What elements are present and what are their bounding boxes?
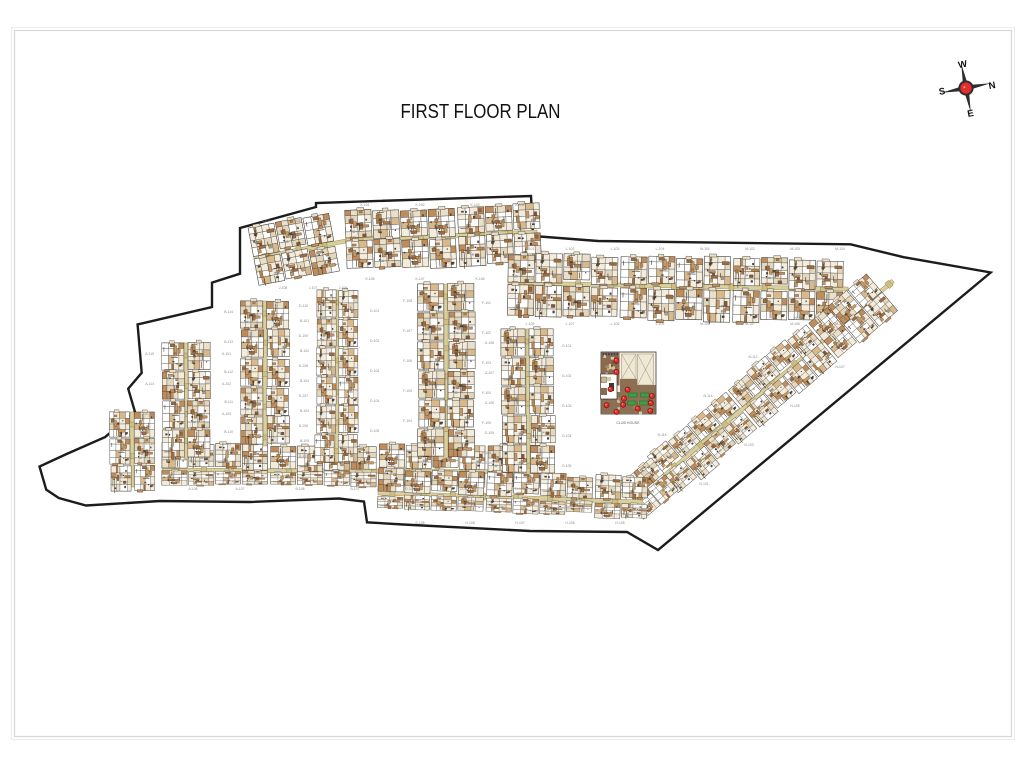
svg-text:D-107: D-107 (299, 394, 308, 398)
svg-text:L-102: L-102 (566, 247, 575, 251)
svg-text:F-105: F-105 (403, 389, 412, 393)
svg-text:D-104: D-104 (370, 399, 379, 403)
svg-text:F-106: F-106 (403, 359, 412, 363)
svg-text:M-107: M-107 (745, 322, 755, 326)
svg-text:K-107: K-107 (415, 277, 424, 281)
svg-text:K-105: K-105 (525, 277, 534, 281)
svg-text:D-109: D-109 (299, 334, 308, 338)
svg-text:F-107: F-107 (403, 329, 412, 333)
svg-text:G-103: G-103 (562, 404, 572, 408)
svg-text:B-101: B-101 (300, 319, 309, 323)
svg-text:G-101: G-101 (562, 344, 572, 348)
svg-text:N-116: N-116 (658, 433, 667, 437)
svg-text:G-104: G-104 (562, 434, 572, 438)
svg-text:N-112: N-112 (749, 355, 758, 359)
svg-text:FIRST FLOOR PLAN: FIRST FLOOR PLAN (401, 100, 561, 123)
svg-text:J-106: J-106 (339, 286, 348, 290)
svg-text:A-108: A-108 (188, 487, 197, 491)
svg-text:B-110: B-110 (224, 430, 233, 434)
svg-text:M-106: M-106 (790, 322, 800, 326)
svg-text:B-111: B-111 (224, 400, 233, 404)
svg-text:J-107: J-107 (309, 286, 318, 290)
svg-text:D-106: D-106 (299, 424, 308, 428)
svg-text:D-105: D-105 (370, 429, 379, 433)
svg-text:F-104: F-104 (482, 391, 491, 395)
svg-text:M-108: M-108 (700, 322, 710, 326)
svg-text:N-101: N-101 (699, 482, 708, 486)
svg-text:K-102: K-102 (415, 203, 424, 207)
svg-text:D-101: D-101 (370, 309, 379, 313)
svg-text:F-106: F-106 (482, 451, 491, 455)
svg-text:B-114: B-114 (224, 310, 233, 314)
svg-text:A-112: A-112 (145, 442, 154, 446)
svg-text:A-101: A-101 (222, 352, 231, 356)
svg-text:A-103: A-103 (222, 412, 231, 416)
svg-text:F-103: F-103 (482, 361, 491, 365)
svg-text:B-103: B-103 (300, 379, 309, 383)
svg-text:E-108: E-108 (415, 521, 424, 525)
svg-text:L-105: L-105 (656, 322, 665, 326)
svg-text:J-103: J-103 (322, 219, 331, 223)
svg-text:B-108: B-108 (295, 487, 304, 491)
svg-text:G-106: G-106 (485, 401, 495, 405)
svg-text:A-104: A-104 (222, 442, 231, 446)
svg-text:K-106: K-106 (475, 277, 484, 281)
svg-text:B-113: B-113 (224, 340, 233, 344)
svg-text:K-103: K-103 (470, 203, 479, 207)
svg-text:G-104: G-104 (485, 461, 495, 465)
svg-text:G-105: G-105 (485, 431, 495, 435)
svg-text:F-103: F-103 (403, 449, 412, 453)
svg-text:D-102: D-102 (370, 339, 379, 343)
svg-text:B-107: B-107 (350, 487, 359, 491)
svg-text:A-107: A-107 (235, 487, 244, 491)
svg-text:K-101: K-101 (360, 203, 369, 207)
svg-text:M-105: M-105 (835, 322, 845, 326)
svg-text:D-103: D-103 (370, 369, 379, 373)
svg-text:H-105: H-105 (615, 521, 624, 525)
svg-text:D-107: D-107 (460, 487, 469, 491)
svg-text:D-105: D-105 (299, 454, 308, 458)
svg-text:F-108: F-108 (403, 299, 412, 303)
svg-text:N-114: N-114 (704, 394, 713, 398)
svg-text:B-105: B-105 (300, 439, 309, 443)
svg-text:N-110: N-110 (795, 316, 804, 320)
svg-text:B-112: B-112 (224, 370, 233, 374)
svg-text:D-110: D-110 (299, 304, 308, 308)
svg-text:L-103: L-103 (611, 247, 620, 251)
svg-text:J-108: J-108 (279, 286, 288, 290)
svg-text:A-114: A-114 (145, 382, 154, 386)
svg-text:M-101: M-101 (700, 247, 710, 251)
svg-text:M-102: M-102 (745, 247, 755, 251)
svg-text:A-102: A-102 (222, 382, 231, 386)
svg-text:A-113: A-113 (145, 412, 154, 416)
svg-text:L-101: L-101 (526, 247, 535, 251)
svg-text:B-104: B-104 (300, 409, 309, 413)
svg-text:G-107: G-107 (485, 371, 495, 375)
svg-text:H-106: H-106 (565, 521, 574, 525)
svg-text:N-105: N-105 (790, 404, 799, 408)
svg-text:M-104: M-104 (835, 247, 845, 251)
svg-text:L-106: L-106 (611, 322, 620, 326)
svg-text:L-104: L-104 (656, 247, 665, 251)
svg-text:G-102: G-102 (562, 374, 572, 378)
svg-text:H-108: H-108 (465, 521, 474, 525)
svg-text:H-107: H-107 (515, 521, 524, 525)
svg-text:K-108: K-108 (365, 277, 374, 281)
svg-text:K-104: K-104 (515, 203, 524, 207)
svg-text:D-108: D-108 (299, 364, 308, 368)
svg-text:J-102: J-102 (292, 219, 301, 223)
svg-text:B-102: B-102 (300, 349, 309, 353)
svg-text:D-108: D-108 (405, 487, 414, 491)
svg-text:A-115: A-115 (145, 352, 154, 356)
svg-text:M-103: M-103 (790, 247, 800, 251)
svg-text:N-103: N-103 (744, 443, 753, 447)
svg-text:L-107: L-107 (566, 322, 575, 326)
svg-text:F-105: F-105 (482, 421, 491, 425)
svg-text:D-106: D-106 (515, 487, 524, 491)
svg-text:F-102: F-102 (482, 331, 491, 335)
svg-text:F-101: F-101 (482, 301, 491, 305)
svg-text:L-108: L-108 (526, 322, 535, 326)
svg-text:F-104: F-104 (403, 419, 412, 423)
svg-text:N-107: N-107 (835, 365, 844, 369)
svg-text:G-108: G-108 (485, 341, 495, 345)
svg-text:G-105: G-105 (562, 464, 572, 468)
svg-text:CLUB HOUSE: CLUB HOUSE (616, 421, 640, 425)
svg-text:J-101: J-101 (262, 219, 271, 223)
